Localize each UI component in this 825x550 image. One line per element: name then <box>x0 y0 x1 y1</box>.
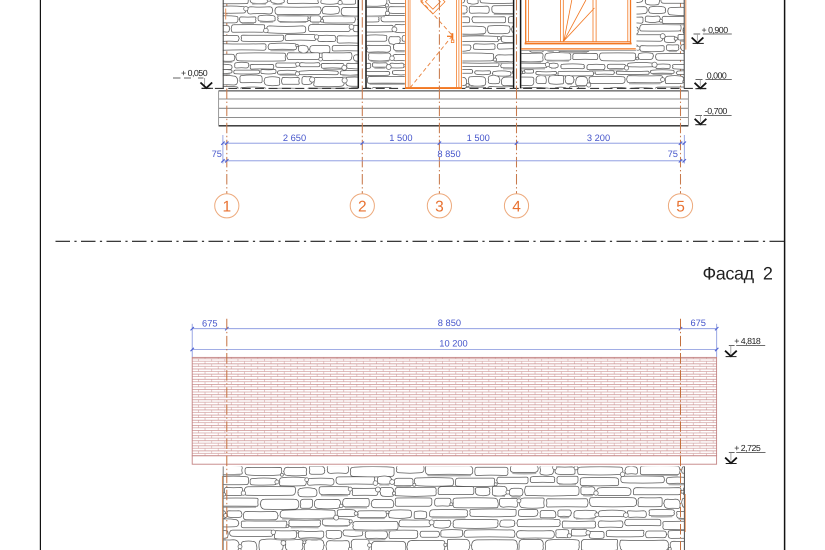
svg-text:10 200: 10 200 <box>439 338 467 348</box>
svg-text:675: 675 <box>202 319 218 329</box>
svg-text:2 650: 2 650 <box>283 133 306 143</box>
svg-text:1: 1 <box>222 198 231 215</box>
svg-text:Фасад 2: Фасад 2 <box>703 264 773 284</box>
svg-text:8 850: 8 850 <box>437 149 460 159</box>
svg-text:75: 75 <box>668 149 678 159</box>
svg-text:4: 4 <box>512 198 521 215</box>
svg-text:+ 4,818: + 4,818 <box>734 336 761 346</box>
svg-text:1 500: 1 500 <box>389 133 412 143</box>
svg-text:675: 675 <box>690 318 706 328</box>
svg-text:1 500: 1 500 <box>467 133 490 143</box>
svg-text:2: 2 <box>358 198 367 215</box>
svg-text:+ 0,900: + 0,900 <box>702 25 729 35</box>
svg-text:3 200: 3 200 <box>587 133 610 143</box>
svg-text:75: 75 <box>212 149 222 159</box>
svg-text:0,000: 0,000 <box>707 71 727 81</box>
svg-text:3: 3 <box>435 198 444 215</box>
svg-text:+ 0,050: + 0,050 <box>181 68 208 78</box>
svg-text:5: 5 <box>676 198 685 215</box>
svg-text:8 850: 8 850 <box>438 318 461 328</box>
svg-text:-0,700: -0,700 <box>705 106 728 116</box>
svg-text:+ 2,725: + 2,725 <box>734 443 761 453</box>
